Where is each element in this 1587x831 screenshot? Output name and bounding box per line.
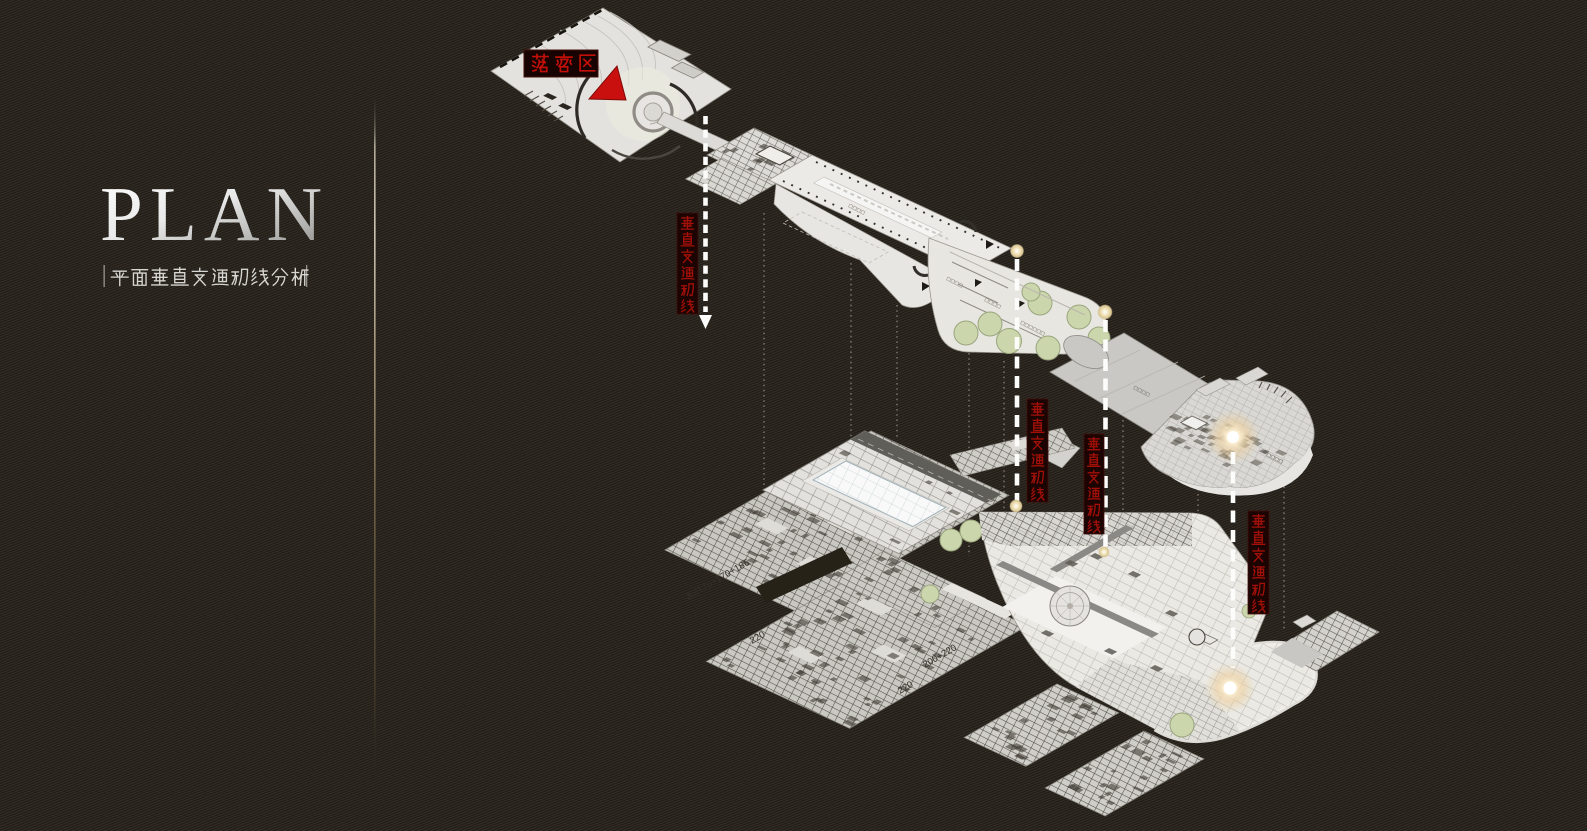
svg-text:PLAN: PLAN bbox=[100, 171, 329, 257]
